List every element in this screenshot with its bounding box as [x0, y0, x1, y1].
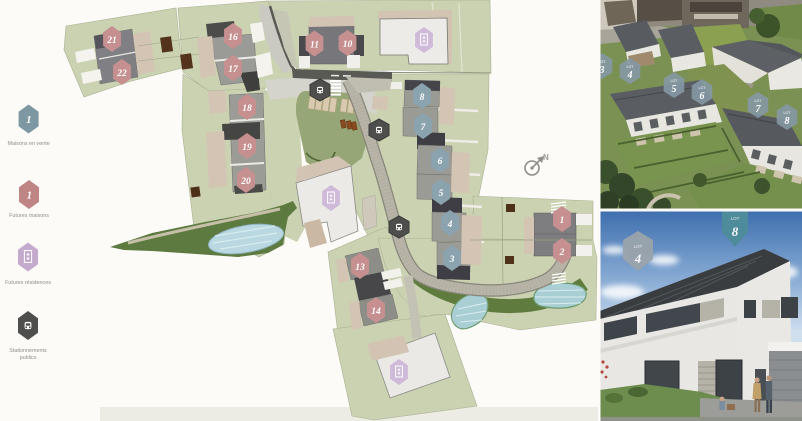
svg-text:LOT: LOT [755, 99, 763, 103]
svg-text:11: 11 [310, 40, 319, 50]
svg-text:5: 5 [439, 189, 444, 199]
svg-text:14: 14 [371, 307, 381, 317]
svg-text:16: 16 [228, 33, 238, 43]
svg-text:Maisons en vente: Maisons en vente [7, 141, 49, 147]
svg-text:4: 4 [634, 251, 642, 266]
svg-text:LOT: LOT [627, 65, 635, 69]
svg-text:Futures résidences: Futures résidences [5, 280, 51, 286]
svg-text:LOT: LOT [671, 79, 679, 83]
svg-text:1: 1 [26, 114, 32, 126]
svg-text:2: 2 [559, 248, 565, 258]
svg-text:3: 3 [449, 255, 455, 265]
svg-text:17: 17 [228, 65, 239, 75]
svg-text:8: 8 [732, 224, 739, 239]
svg-text:6: 6 [700, 91, 705, 102]
svg-text:6: 6 [438, 157, 443, 167]
svg-text:N: N [543, 153, 549, 162]
svg-text:LOT: LOT [634, 244, 643, 249]
svg-text:publics: publics [20, 355, 37, 361]
svg-text:13: 13 [355, 263, 365, 273]
svg-text:LOT: LOT [784, 111, 792, 115]
svg-text:22: 22 [116, 69, 127, 79]
svg-text:18: 18 [242, 104, 252, 114]
svg-text:10: 10 [343, 40, 353, 50]
svg-text:8: 8 [420, 93, 425, 103]
svg-text:4: 4 [627, 70, 633, 81]
svg-text:LOT: LOT [699, 86, 707, 90]
svg-text:Futures maisons: Futures maisons [9, 213, 49, 219]
svg-text:5: 5 [672, 84, 677, 95]
svg-text:19: 19 [242, 143, 252, 153]
svg-text:1: 1 [27, 190, 33, 202]
svg-text:Stationnements: Stationnements [9, 348, 47, 354]
svg-text:1: 1 [560, 216, 565, 226]
svg-text:4: 4 [447, 220, 453, 230]
svg-text:8: 8 [785, 116, 790, 127]
svg-text:21: 21 [106, 36, 117, 46]
svg-text:20: 20 [240, 177, 251, 187]
svg-text:LOT: LOT [731, 216, 740, 221]
